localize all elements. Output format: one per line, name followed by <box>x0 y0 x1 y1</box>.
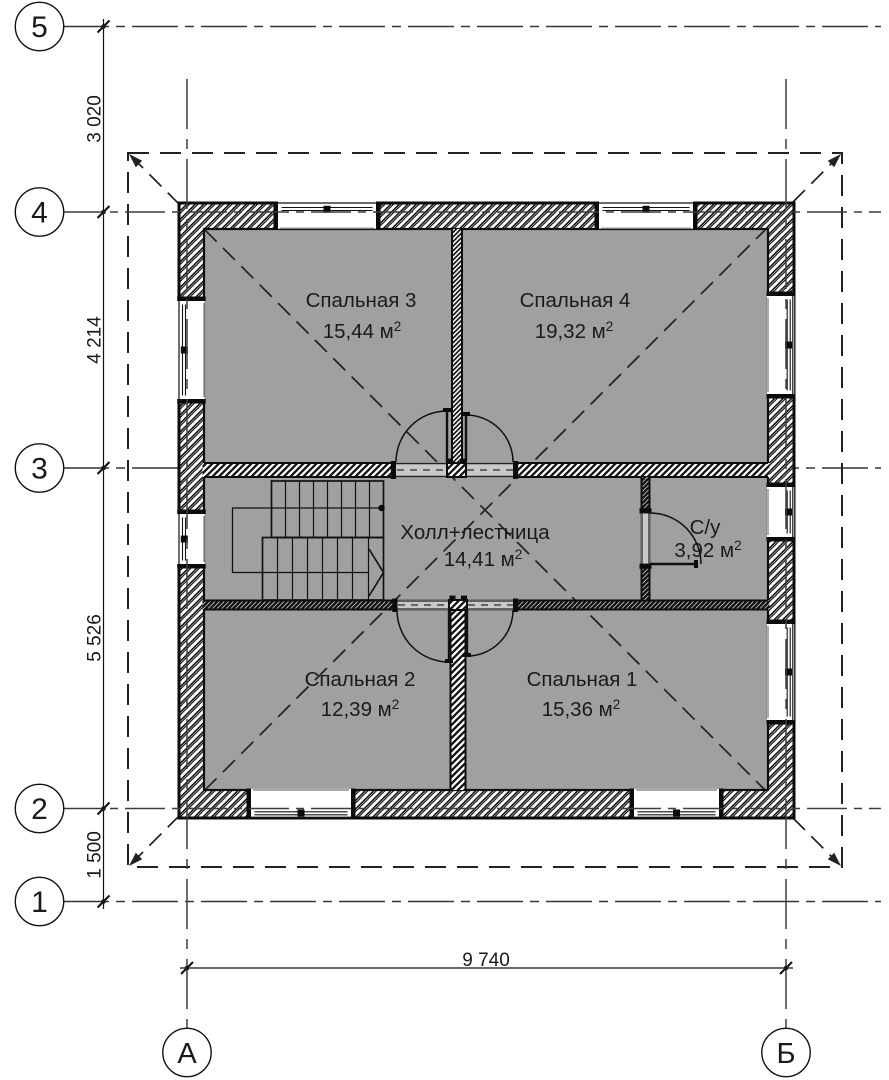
svg-text:3,92 м2: 3,92 м2 <box>674 538 741 562</box>
svg-text:19,32 м2: 19,32 м2 <box>535 319 614 343</box>
svg-text:5 526: 5 526 <box>85 614 106 662</box>
svg-text:Спальная 2: Спальная 2 <box>305 668 416 691</box>
svg-text:1 500: 1 500 <box>85 831 106 879</box>
svg-text:4: 4 <box>31 197 48 230</box>
svg-text:3 020: 3 020 <box>85 95 106 143</box>
svg-text:С/у: С/у <box>690 516 722 539</box>
svg-text:14,41 м2: 14,41 м2 <box>444 547 523 571</box>
svg-text:4 214: 4 214 <box>85 316 106 364</box>
svg-text:Холл+лестница: Холл+лестница <box>400 521 550 544</box>
svg-text:Спальная 1: Спальная 1 <box>527 668 638 691</box>
svg-text:12,39 м2: 12,39 м2 <box>321 697 400 721</box>
svg-text:2: 2 <box>31 793 48 826</box>
svg-text:15,44 м2: 15,44 м2 <box>323 319 402 343</box>
svg-text:1: 1 <box>31 886 48 919</box>
svg-text:Спальная 3: Спальная 3 <box>306 289 417 312</box>
svg-text:9 740: 9 740 <box>462 950 510 971</box>
svg-text:5: 5 <box>31 11 48 44</box>
svg-text:Спальная 4: Спальная 4 <box>520 289 631 312</box>
svg-text:15,36 м2: 15,36 м2 <box>542 697 621 721</box>
svg-text:А: А <box>177 1038 197 1070</box>
svg-text:Б: Б <box>776 1038 795 1070</box>
svg-text:3: 3 <box>31 453 48 486</box>
